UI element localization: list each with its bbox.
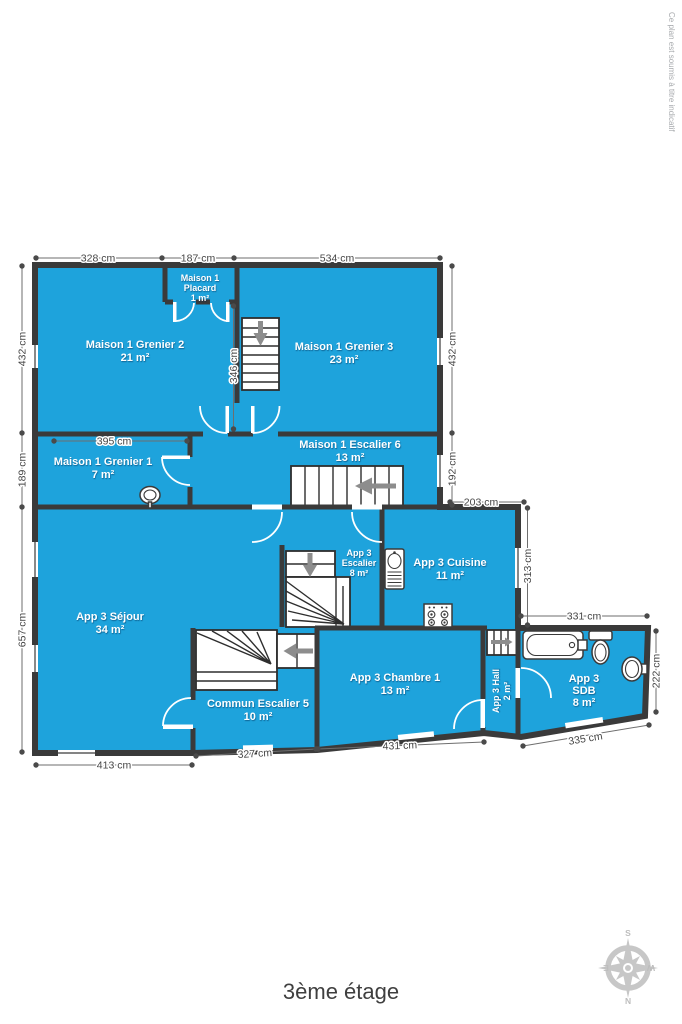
svg-text:21 m²: 21 m² [121, 352, 150, 364]
svg-text:Escalier: Escalier [342, 558, 377, 568]
svg-text:13 m²: 13 m² [381, 685, 410, 697]
svg-text:34 m²: 34 m² [96, 624, 125, 636]
room-label-grenier2: Maison 1 Grenier 2 [86, 339, 184, 351]
bathtub-icon [523, 631, 587, 659]
dim-right-2: 192 cm [447, 452, 459, 487]
svg-text:1 m²: 1 m² [191, 293, 210, 303]
compass-east-label: E [603, 963, 609, 973]
dim-grenier1-width: 395 cm [97, 436, 132, 448]
dim-sdb-bottom: 335 cm [568, 730, 604, 748]
room-label-sdb: App 3 [569, 673, 600, 685]
dim-top-3: 534 cm [320, 253, 355, 265]
svg-text:10 m²: 10 m² [244, 711, 273, 723]
room-label-commun-escalier5: Commun Escalier 5 [207, 698, 309, 710]
svg-text:2 m²: 2 m² [502, 682, 512, 701]
room-label-grenier3: Maison 1 Grenier 3 [295, 341, 393, 353]
svg-text:8 m²: 8 m² [573, 697, 596, 709]
dim-sdb-right: 222 cm [651, 654, 663, 689]
dim-left-1: 432 cm [17, 332, 29, 367]
dim-bottom-3: 431 cm [382, 739, 417, 753]
dim-left-3: 657 cm [17, 613, 29, 648]
room-label-placard: Maison 1 [181, 273, 220, 283]
dim-top-1: 328 cm [81, 253, 116, 265]
floor-plan-page: 328 cm 187 cm 534 cm 432 cm 189 cm 657 c… [0, 0, 682, 1024]
compass-rose-icon: S N E W [598, 928, 658, 1006]
stove-icon [424, 604, 452, 627]
svg-text:23 m²: 23 m² [330, 354, 359, 366]
compass-north-label: N [625, 996, 631, 1006]
svg-text:7 m²: 7 m² [92, 469, 115, 481]
floor-title: 3ème étage [283, 979, 399, 1004]
dim-stairwell: 346 cm [228, 349, 240, 384]
dim-bottom-1: 413 cm [97, 760, 132, 772]
room-label-sejour: App 3 Séjour [76, 611, 145, 623]
svg-text:11 m²: 11 m² [436, 570, 464, 582]
room-label-cuisine: App 3 Cuisine [413, 557, 486, 569]
room-label-chambre1: App 3 Chambre 1 [350, 672, 440, 684]
stairs-escalier6 [291, 466, 403, 506]
dim-203: 203 cm [464, 497, 499, 509]
room-label-escalier6: Maison 1 Escalier 6 [299, 439, 401, 451]
stairs-maison1 [242, 318, 279, 390]
kitchen-sink-icon [385, 549, 404, 589]
svg-text:13 m²: 13 m² [336, 452, 365, 464]
room-label-app3-escalier: App 3 [346, 548, 371, 558]
room-label-grenier1: Maison 1 Grenier 1 [54, 456, 152, 468]
dim-313: 313 cm [522, 549, 534, 584]
floor-plan-canvas: 328 cm 187 cm 534 cm 432 cm 189 cm 657 c… [0, 0, 682, 1024]
disclaimer-text: Ce plan est soumis à titre indicatif [667, 12, 676, 132]
svg-text:Placard: Placard [184, 283, 217, 293]
dim-sdb-top: 331 cm [567, 611, 602, 623]
dim-top-2: 187 cm [181, 253, 216, 265]
dim-left-2: 189 cm [17, 453, 29, 488]
compass-west-label: W [646, 963, 655, 973]
stairs-hall [487, 630, 517, 655]
svg-text:8 m²: 8 m² [350, 568, 369, 578]
compass-south-label: S [625, 928, 631, 938]
dim-bottom-2: 327 cm [237, 747, 272, 761]
svg-text:SDB: SDB [572, 685, 595, 697]
room-label-hall: App 3 Hall [491, 669, 501, 713]
dim-right-1: 432 cm [447, 332, 459, 367]
